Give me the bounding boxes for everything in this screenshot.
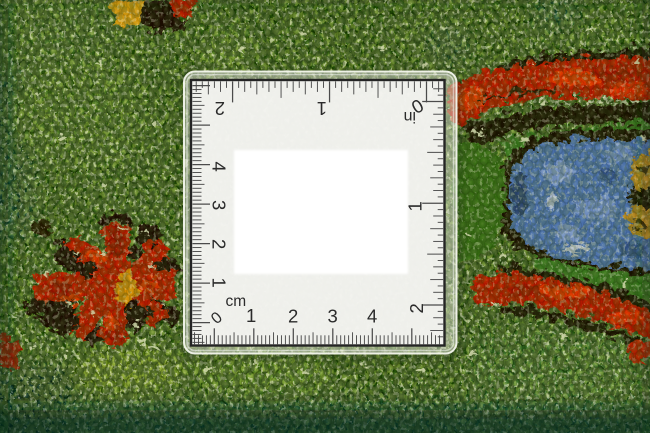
svg-text:4: 4	[367, 306, 377, 327]
svg-text:1: 1	[209, 278, 230, 288]
svg-text:1: 1	[317, 98, 327, 119]
svg-text:2: 2	[288, 306, 298, 327]
svg-text:1: 1	[405, 201, 426, 211]
svg-text:2: 2	[209, 239, 230, 249]
svg-text:2: 2	[215, 98, 225, 119]
svg-text:3: 3	[209, 200, 230, 210]
svg-text:3: 3	[328, 306, 338, 327]
svg-text:1: 1	[246, 305, 256, 326]
svg-text:cm: cm	[226, 293, 247, 310]
svg-text:2: 2	[406, 303, 427, 313]
svg-text:in: in	[404, 108, 416, 125]
svg-text:4: 4	[209, 162, 230, 172]
